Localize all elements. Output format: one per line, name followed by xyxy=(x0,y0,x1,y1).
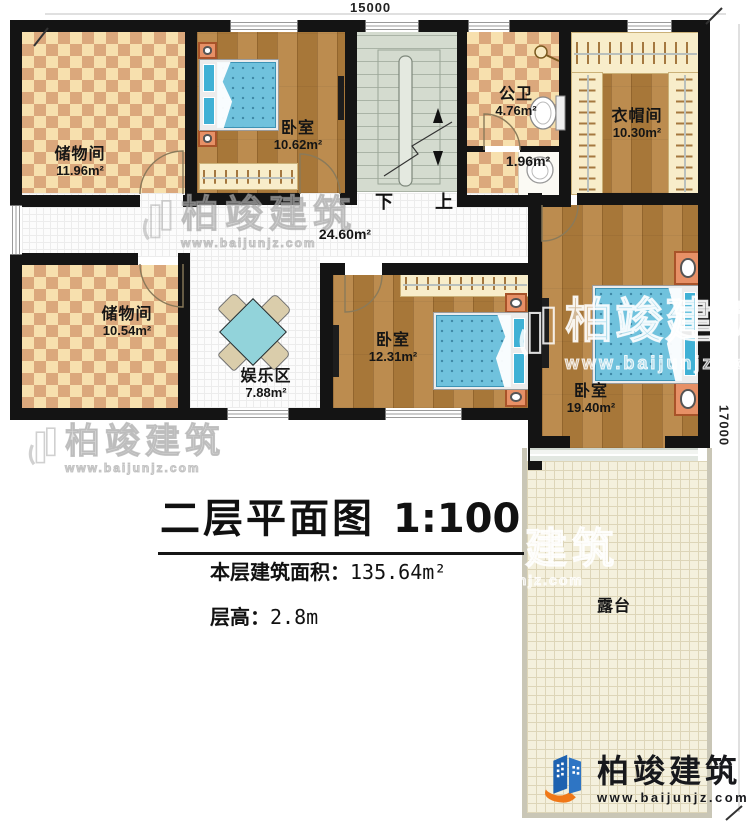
wall-segment xyxy=(382,263,528,275)
dimension-right: 17000 xyxy=(717,396,732,456)
wall-segment xyxy=(340,193,357,205)
window xyxy=(10,205,22,255)
wall-segment xyxy=(10,20,710,32)
wall-segment xyxy=(467,146,485,152)
wall-segment xyxy=(577,193,698,205)
wall-segment xyxy=(528,193,542,470)
room-label: 1.96m² xyxy=(506,153,550,169)
window xyxy=(627,20,672,32)
floor-area-line: 本层建筑面积：135.64m² xyxy=(210,556,446,585)
room-label: 卧室 12.31m² xyxy=(369,332,417,365)
wall-segment xyxy=(183,195,197,207)
cloakroom-closet-left xyxy=(571,72,603,195)
room-label: 卧室 19.40m² xyxy=(567,383,615,416)
wall-segment xyxy=(665,436,710,448)
sliding-door xyxy=(530,448,698,461)
cloakroom-closet-top xyxy=(571,32,700,74)
double-bed xyxy=(592,285,700,384)
wall-segment xyxy=(185,32,197,195)
plan-scale: 1:100 xyxy=(393,496,520,542)
watermark: 柏竣建筑 www.baijunjz.com xyxy=(26,424,225,474)
nightstand xyxy=(505,293,527,313)
wall-segment xyxy=(559,32,571,205)
wall-segment xyxy=(528,436,570,448)
mattress xyxy=(595,288,682,381)
pillow xyxy=(203,64,215,92)
stairs-down-label: 下 xyxy=(375,188,393,214)
wall-segment xyxy=(520,146,559,152)
window xyxy=(385,408,462,420)
plan-title-block: 二层平面图1:100 xyxy=(158,486,524,555)
floor-plan-canvas: 储物间 11.96m² 卧室 10.62m² 公卫 4.76m² 1.96m² … xyxy=(0,0,750,826)
double-bed xyxy=(433,312,529,390)
window xyxy=(230,20,298,32)
wall-segment xyxy=(10,253,138,265)
company-url: www.baijunjz.com xyxy=(597,791,749,804)
wardrobe xyxy=(199,163,298,190)
company-name: 柏竣建筑 xyxy=(597,755,749,787)
cloakroom-closet-right xyxy=(668,72,700,195)
window xyxy=(365,20,419,32)
room-label: 储物间 10.54m² xyxy=(101,306,152,339)
dimension-top: 15000 xyxy=(350,0,391,15)
nightstand xyxy=(198,42,217,59)
plan-title: 二层平面图 xyxy=(160,497,375,541)
company-logo-icon xyxy=(536,750,588,808)
room-label: 公卫 4.76m² xyxy=(495,86,536,119)
dimension-tick xyxy=(726,806,742,820)
room-label: 24.60m² xyxy=(319,226,371,242)
company-logo: 柏竣建筑 www.baijunjz.com xyxy=(536,750,749,808)
tv xyxy=(542,298,549,368)
wall-segment xyxy=(345,32,357,193)
pillow xyxy=(513,353,525,383)
wall-segment xyxy=(10,195,140,207)
terrace-parapet xyxy=(522,813,712,818)
room-storage-mid-floor xyxy=(22,265,178,408)
watermark-logo-icon xyxy=(26,425,58,473)
pillow xyxy=(684,292,696,331)
room-label-terrace: 露台 xyxy=(597,598,631,616)
double-bed xyxy=(199,59,279,131)
nightstand xyxy=(198,130,217,147)
wall-segment xyxy=(320,263,333,420)
tv xyxy=(333,325,339,377)
wall-segment xyxy=(457,32,467,195)
room-label: 储物间 11.96m² xyxy=(54,146,105,179)
wall-segment xyxy=(457,195,571,207)
window xyxy=(468,20,510,32)
pillow xyxy=(513,318,525,348)
stairs-up-label: 上 xyxy=(435,188,453,214)
wall-segment xyxy=(698,20,710,448)
stairwell-floor xyxy=(357,32,457,192)
floor-height-line: 层高：2.8m xyxy=(210,601,318,630)
room-label: 衣帽间 10.30m² xyxy=(611,108,662,141)
room-label: 卧室 10.62m² xyxy=(274,120,322,153)
tv xyxy=(338,76,344,120)
pillow xyxy=(203,97,215,125)
nightstand xyxy=(505,387,527,407)
window xyxy=(227,408,289,420)
wall-segment xyxy=(178,253,190,420)
room-label: 娱乐区 7.88m² xyxy=(240,368,291,401)
pillow xyxy=(684,337,696,376)
wall-segment xyxy=(197,193,300,205)
